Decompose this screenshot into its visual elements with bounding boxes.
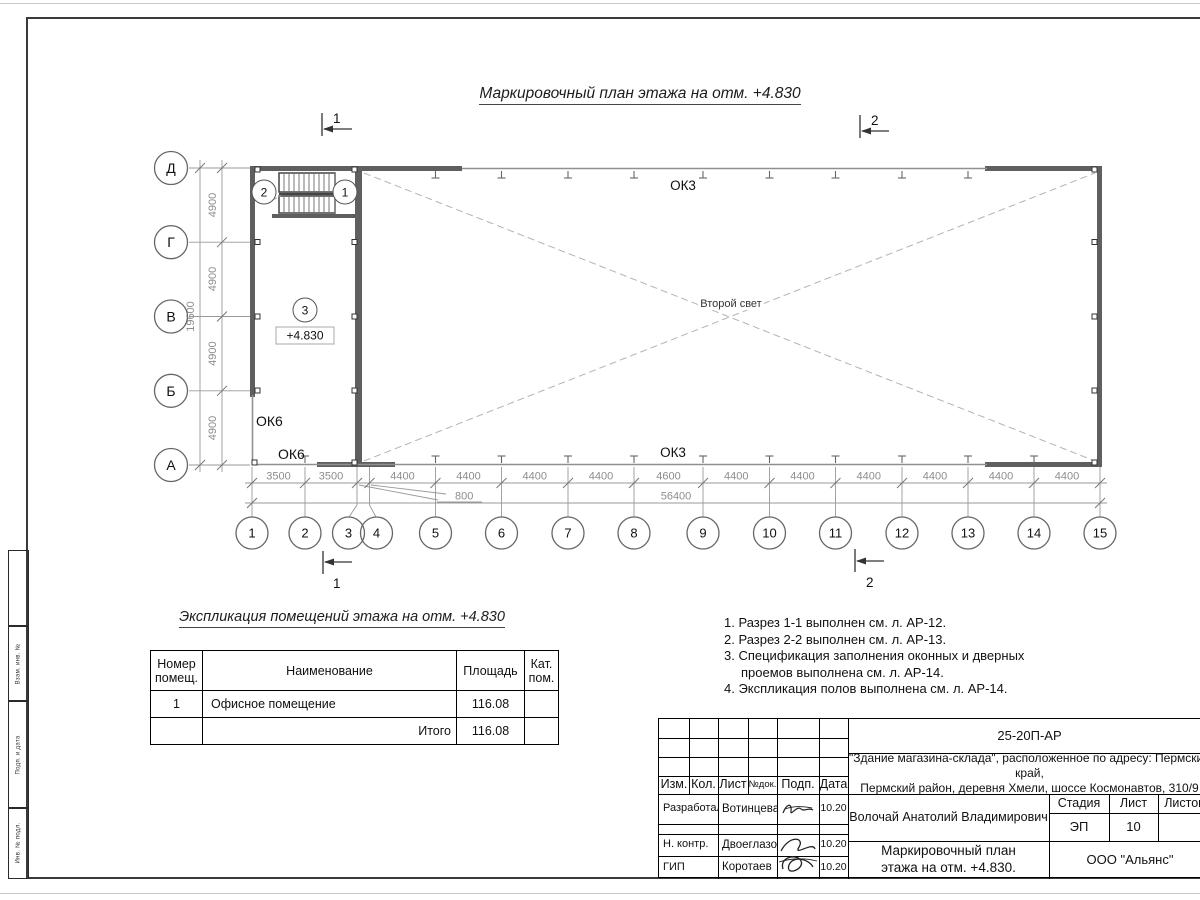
svg-text:3500: 3500 [319,471,343,483]
note-4: 4. Экспликация полов выполнена см. л. АР… [724,681,1064,698]
window-marks-top [432,171,973,178]
drawing-title: Маркировочный план этажа на отм. +4.830. [848,841,1049,879]
svg-text:12: 12 [895,526,909,541]
opening-mark-1: 1 [342,186,349,200]
svg-text:4: 4 [373,526,380,541]
signer-role: Н. контр. [659,834,718,856]
h-dim-labels: 3500 3500 4400 4400 4400 4400 4600 4400 … [266,471,1079,503]
col-axis-circles [236,517,1116,549]
signature-icon [775,831,821,879]
object-address: "Здание магазина-склада", расположенное … [848,753,1200,794]
svg-text:19600: 19600 [185,301,197,332]
total-row: Итого 116.08 [151,718,559,745]
explication-header-row: Номер помещ. Наименование Площадь Кат. п… [151,651,559,691]
svg-text:4600: 4600 [656,471,680,483]
sheet-label: Лист [1109,794,1158,813]
title-block: Изм. Кол. Лист №док. Подп. Дата Разработ… [658,718,1200,878]
svg-text:4400: 4400 [456,471,480,483]
svg-text:4400: 4400 [1055,471,1079,483]
svg-text:Б: Б [166,383,175,399]
svg-text:4400: 4400 [989,471,1013,483]
svg-text:4400: 4400 [589,471,613,483]
svg-text:4900: 4900 [207,193,219,217]
svg-text:4400: 4400 [790,471,814,483]
svg-text:4400: 4400 [923,471,947,483]
walls [250,166,1102,467]
rev-header-izm: Изм. [659,776,689,794]
sheets-label: Листов [1158,794,1200,813]
svg-text:4400: 4400 [724,471,748,483]
col-header-area: Площадь [457,651,525,691]
axis-grid-left: 4900 4900 4900 4900 19600 Д Г В Б А [155,152,251,482]
signer-role: ГИП [659,856,718,879]
svg-text:7: 7 [564,526,571,541]
note-2: 2. Разрез 2-2 выполнен см. л. АР-13. [724,632,1064,649]
total-label: Итого [203,718,457,745]
column-squares [252,167,1097,465]
window-tag-ok6-bottom: ОК6 [278,446,305,462]
dim-total: 56400 [661,491,692,503]
axis-grid-bottom: 3500 3500 4400 4400 4400 4400 4600 4400 … [236,467,1116,549]
signer-name: Коротаев [718,856,777,879]
author-name: Волочай Анатолий Владимирович [848,794,1049,841]
svg-text:А: А [166,457,176,473]
signer-name: Двоеглазов [718,834,777,856]
svg-text:4900: 4900 [207,416,219,440]
room-number: 1 [151,691,203,718]
doc-number: 25-20П-АР [848,719,1200,753]
rev-header-list: Лист [718,776,748,794]
svg-text:2: 2 [301,526,308,541]
rev-header-data: Дата [819,776,848,794]
signer-name: Вотинцева [718,794,777,824]
row-axis-labels: Д Г В Б А [166,160,176,473]
svg-text:Г: Г [167,234,175,250]
svg-text:11: 11 [829,526,843,541]
signer-date: 10.20 [819,794,848,824]
svg-text:4400: 4400 [390,471,414,483]
thin-walls-windows [252,169,987,466]
second-light-label: Второй свет [700,298,761,310]
stage-label: Стадия [1049,794,1109,813]
company-name: ООО "Альянс" [1049,841,1200,879]
svg-text:4900: 4900 [207,341,219,365]
window-marks [301,171,1038,463]
svg-text:8: 8 [630,526,637,541]
signer-date: 10.20 [819,856,848,879]
explication-title: Экспликация помещений этажа на отм. +4.8… [152,609,532,625]
opening-mark-2: 2 [261,186,268,200]
explication-table: Номер помещ. Наименование Площадь Кат. п… [150,650,559,745]
window-tag-ok3-bottom: ОК3 [660,445,686,460]
window-tag-ok3-top: ОК3 [670,178,696,193]
svg-text:4400: 4400 [523,471,547,483]
stair [270,172,335,214]
signature-icon [779,797,817,821]
svg-text:3500: 3500 [266,471,290,483]
rev-header-kol: Кол. [689,776,718,794]
section-1-bottom: 1 [333,576,341,591]
svg-text:4400: 4400 [857,471,881,483]
svg-text:9: 9 [699,526,706,541]
col-header-number: Номер помещ. [151,651,203,691]
notes-list: 1. Разрез 1-1 выполнен см. л. АР-12. 2. … [724,615,1064,698]
svg-text:15: 15 [1093,526,1107,541]
rev-header-podp: Подп. [777,776,819,794]
dim-800: 800 [455,491,473,503]
room-name: Офисное помещение [203,691,457,718]
col-header-name: Наименование [203,651,457,691]
note-3: 3. Спецификация заполнения оконных и две… [724,648,1064,681]
stage-value: ЭП [1049,813,1109,841]
room-mark: 3 [302,304,309,318]
window-tag-ok6-left: ОК6 [256,413,283,429]
svg-text:6: 6 [498,526,505,541]
section-2-top: 2 [871,113,879,128]
note-1: 1. Разрез 1-1 выполнен см. л. АР-12. [724,615,1064,632]
section-marks: 1 1 2 2 [322,111,889,591]
room-area: 116.08 [457,691,525,718]
rev-header-dok: №док. [748,776,777,794]
svg-text:В: В [166,309,175,325]
signer-date: 10.20 [819,834,848,856]
room-category [525,691,559,718]
section-2-bottom: 2 [866,575,874,590]
col-header-category: Кат. пом. [525,651,559,691]
svg-text:14: 14 [1027,526,1041,541]
svg-text:4900: 4900 [207,267,219,291]
second-light-diagonals [364,173,1095,461]
total-area: 116.08 [457,718,525,745]
drawing-sheet: { "page": { "main_title": "Маркировочный… [0,0,1200,900]
svg-text:Д: Д [166,160,176,176]
signer-role: Разработал [659,794,718,824]
svg-text:3: 3 [345,526,352,541]
svg-text:1: 1 [248,526,255,541]
table-row: 1 Офисное помещение 116.08 [151,691,559,718]
svg-text:13: 13 [961,526,975,541]
svg-text:5: 5 [432,526,439,541]
section-1-top: 1 [333,111,341,126]
svg-text:10: 10 [762,526,776,541]
elevation-label: +4.830 [286,329,323,343]
col-axis-labels: 1 2 3 4 5 6 7 8 9 10 11 12 13 14 15 [248,526,1107,541]
sheet-number: 10 [1109,813,1158,841]
